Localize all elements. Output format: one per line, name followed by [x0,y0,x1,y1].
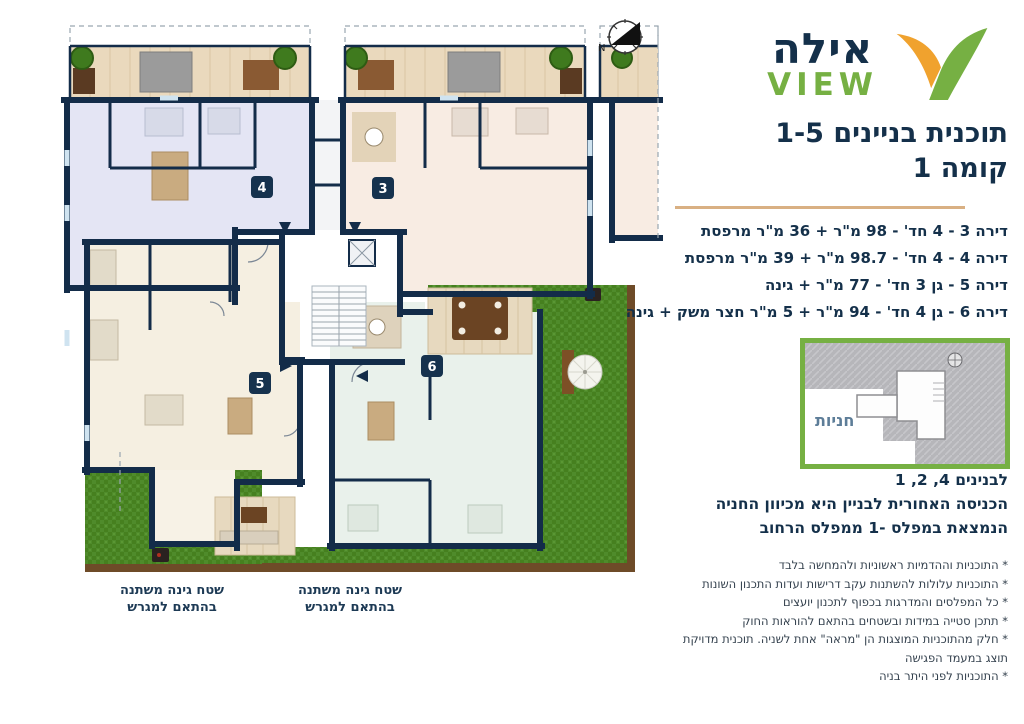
bed [90,320,118,360]
unit-badge-6: 6 [421,355,443,377]
disclaimer-item: * תתכן סטייה במידות ובשטחים בהתאם להוראו… [666,612,1008,631]
tree [274,47,296,69]
unit-number: 4 [257,181,266,196]
access-note-line2: הכניסה האחורית לבניין היא מכיוון החניה [716,492,1008,516]
balcony-sofa [73,68,95,94]
dining-table [228,398,252,434]
page-title-line1: תוכנית בניינים 1-5 [775,116,1008,151]
minimap-parking-label: חניות [815,411,854,430]
garden-caption-line1: שטח גינה משתנה [120,583,224,598]
bed [90,250,116,288]
balcony-sofa [560,68,582,94]
compass-north-label: N [598,43,605,54]
apartment-list-item: דירה 4 - 4 חד' - 98.7 מ"ר + 39 מ"ר מרפסת [626,245,1008,272]
site-minimap: חניות [800,338,1010,469]
coffee-table [369,319,385,335]
garden-caption-line1: שטח גינה משתנה [298,583,402,598]
floor-plan: 4 3 5 6 N שטח גינה משתנה בהתאם למגרש שטח… [0,0,680,700]
balcony-dining-table [140,52,192,92]
brand-name-latin: VIEW [767,69,878,101]
garden-caption-line2: בהתאם למגרש [127,600,217,615]
garden-caption-left: שטח גינה משתנה בהתאם למגרש [120,583,224,615]
tree [550,47,572,69]
bed [348,505,378,531]
tree [345,47,367,69]
page-title: תוכנית בניינים 1-5 קומה 1 [775,116,1008,186]
bed [452,108,488,136]
balcony-dining-table [448,52,500,92]
garden-caption-right: שטח גינה משתנה בהתאם למגרש [298,583,402,615]
dining-table [152,152,188,200]
tree [71,47,93,69]
apartment-list: דירה 3 - 4 חד' - 98 מ"ר + 36 מ"ר מרפסת ד… [626,218,1008,326]
coffee-table [365,128,383,146]
site-minimap-drawing [805,343,1005,464]
patio-table [241,507,267,523]
unit-number: 6 [427,360,436,375]
brand-name-hebrew: אילה [767,29,878,69]
apartment-list-item: דירה 3 - 4 חד' - 98 מ"ר + 36 מ"ר מרפסת [626,218,1008,245]
apartment-list-item: דירה 5 - גן 3 חד' - 77 מ"ר + גינה [626,272,1008,299]
unit-badge-3: 3 [372,177,394,199]
brand-v-mark-icon [890,28,990,102]
disclaimer-item: * התוכניות עלולות להשתנות עקב דרישות ועד… [666,575,1008,594]
brand-logo: אילה VIEW [767,28,990,102]
disclaimer-list: * התוכניות וההדמיות ראשוניות ולהמחשה בלב… [666,556,1008,686]
access-note-line1: לבנינים 4, 2, 1 [716,468,1008,492]
elevator [349,240,375,266]
page-title-line2: קומה 1 [775,151,1008,186]
access-note: לבנינים 4, 2, 1 הכניסה האחורית לבניין הי… [716,468,1008,540]
disclaimer-item: * התוכניות וההדמיות ראשוניות ולהמחשה בלב… [666,556,1008,575]
unit-badge-4: 4 [251,176,273,198]
minimap-parking-area [805,441,915,464]
disclaimer-item: * חלק מהתוכניות המוצגות הן "מראה" אחת לש… [666,630,1008,667]
brand-logo-text: אילה VIEW [767,29,878,101]
bed [145,108,183,136]
bed [145,395,183,425]
unit-number: 3 [378,182,387,197]
gold-divider [675,206,965,209]
garden-parasol [568,355,602,389]
disclaimer-item: * כל המפלסים והמדרגות בכפוף לתכנון יועצי… [666,593,1008,612]
unit-badge-5: 5 [249,372,271,394]
apartment-list-item: דירה 6 - גן 4 חד' - 94 מ"ר + 5 מ"ר חצר מ… [626,299,1008,326]
bed [468,505,502,533]
page: 4 3 5 6 N שטח גינה משתנה בהתאם למגרש שטח… [0,0,1024,724]
unit-number: 5 [255,377,264,392]
minimap-compass-icon [948,353,962,367]
garden-caption-line2: בהתאם למגרש [305,600,395,615]
disclaimer-item: * התוכניות לפני היתר בניה [666,667,1008,686]
bed [208,108,240,134]
core-top-floor [310,100,345,230]
balcony-rug [243,60,279,90]
access-note-line3: הנמצאת במפלס -1 ממפלס הרחוב [716,516,1008,540]
bed [516,108,548,134]
dining-table [368,402,394,440]
staircase [312,286,366,346]
